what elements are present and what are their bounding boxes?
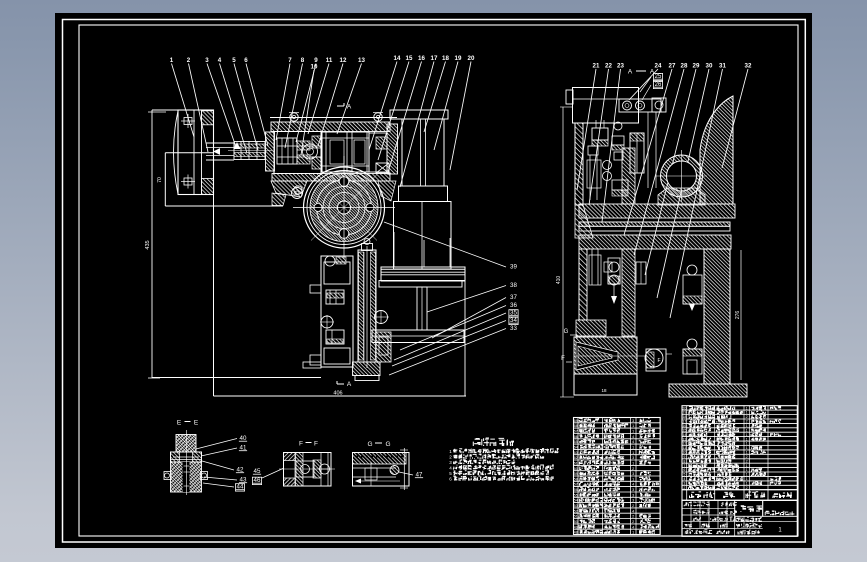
svg-text:6: 6 [683,468,685,472]
svg-text:1: 1 [746,442,748,446]
svg-text:10: 10 [682,451,686,455]
svg-text:4: 4 [632,483,634,487]
svg-text:4: 4 [218,57,222,64]
svg-text:4: 4 [683,477,685,481]
svg-text:32: 32 [745,63,752,70]
svg-text:49: 49 [574,525,578,529]
svg-text:67: 67 [574,430,578,434]
svg-text:F: F [657,358,660,364]
svg-text:1: 1 [746,433,748,437]
svg-text:19: 19 [455,55,462,62]
svg-text:6: 6 [244,57,248,64]
svg-text:57: 57 [574,483,578,487]
svg-text:18: 18 [442,55,449,62]
svg-text:1: 1 [746,411,748,415]
svg-text:7: 7 [683,464,685,468]
svg-text:3: 3 [632,488,634,492]
svg-text:11: 11 [683,446,687,450]
svg-text:5: 5 [232,57,236,64]
svg-text:1: 1 [746,477,748,481]
svg-text:1: 1 [746,424,748,428]
svg-text:A: A [347,381,352,388]
svg-text:4: 4 [632,440,634,444]
svg-text:20: 20 [682,406,686,410]
svg-text:56: 56 [574,488,578,492]
svg-text:1: 1 [746,428,748,432]
svg-text:3: 3 [632,419,634,423]
svg-text:2: 2 [632,515,634,519]
svg-text:8: 8 [301,57,305,64]
svg-text:410: 410 [556,276,562,285]
svg-text:G: G [385,441,390,448]
svg-text:1: 1 [632,446,634,450]
svg-text:13: 13 [358,57,365,64]
svg-text:2: 2 [632,467,634,471]
svg-text:15: 15 [682,428,686,432]
svg-text:60: 60 [574,467,578,471]
svg-text:16: 16 [418,55,425,62]
svg-text:4: 4 [632,509,634,513]
svg-text:4: 4 [632,525,634,529]
svg-text:5: 5 [683,473,685,477]
svg-text:1: 1 [632,430,634,434]
svg-text:276: 276 [735,311,741,320]
svg-text:14: 14 [682,433,686,437]
svg-text:52: 52 [574,509,578,513]
svg-text:28: 28 [681,63,688,70]
svg-text:33: 33 [510,325,517,332]
svg-text:9: 9 [683,455,685,459]
svg-text:G: G [564,329,569,335]
svg-text:53: 53 [574,504,578,508]
svg-text:F: F [299,441,303,448]
svg-text:70: 70 [157,177,163,183]
svg-text:12: 12 [682,442,686,446]
svg-text:2: 2 [632,520,634,524]
svg-text:58: 58 [574,477,578,481]
svg-text:7: 7 [288,57,292,64]
svg-text:1: 1 [170,57,174,64]
svg-text:59: 59 [574,472,578,476]
svg-text:1: 1 [632,424,634,428]
svg-text:16: 16 [682,424,686,428]
svg-text:8: 8 [683,459,685,463]
svg-text:E: E [177,420,182,427]
svg-text:39: 39 [510,264,517,271]
svg-text:21: 21 [593,63,600,70]
svg-text:63: 63 [574,451,578,455]
svg-text:27: 27 [669,63,676,70]
svg-text:3: 3 [632,472,634,476]
svg-text:54: 54 [574,499,578,503]
svg-text:12: 12 [340,57,347,64]
svg-text:G: G [367,441,372,448]
svg-text:22: 22 [605,63,612,70]
svg-text:14: 14 [394,55,401,62]
svg-text:3: 3 [632,456,634,460]
svg-text:23: 23 [617,63,624,70]
svg-text:1: 1 [746,468,748,472]
svg-text:1: 1 [632,477,634,481]
svg-text:50: 50 [574,520,578,524]
svg-text:3: 3 [683,482,685,486]
svg-text:1: 1 [632,451,634,455]
svg-text:36: 36 [510,302,517,309]
svg-text:29: 29 [693,63,700,70]
svg-text:24: 24 [655,63,662,70]
svg-text:1: 1 [746,482,748,486]
svg-text:18: 18 [601,388,607,393]
svg-text:1: 1 [746,437,748,441]
svg-text:1: 1 [746,446,748,450]
svg-text:406: 406 [333,391,342,397]
svg-text:3: 3 [632,493,634,497]
svg-text:2: 2 [746,420,748,424]
svg-text:66: 66 [574,435,578,439]
svg-text:3: 3 [205,57,209,64]
svg-text:1: 1 [632,531,634,535]
svg-text:2: 2 [632,504,634,508]
svg-text:48: 48 [574,531,578,535]
svg-text:2: 2 [746,459,748,463]
svg-text:2: 2 [746,415,748,419]
svg-text:3: 3 [632,499,634,503]
svg-text:65: 65 [574,440,578,444]
svg-text:62: 62 [574,456,578,460]
svg-text:1: 1 [746,451,748,455]
svg-text:11: 11 [326,57,333,64]
svg-text:1: 1 [632,462,634,466]
svg-text:15: 15 [406,55,413,62]
svg-text:20: 20 [468,55,475,62]
svg-text:2: 2 [746,455,748,459]
svg-text:68: 68 [574,424,578,428]
svg-text:F: F [314,441,318,448]
svg-text:10: 10 [311,64,318,71]
svg-text:55: 55 [574,493,578,497]
svg-text:2: 2 [187,57,191,64]
svg-text:51: 51 [574,515,578,519]
svg-text:435: 435 [145,240,151,249]
svg-text:17: 17 [682,420,686,424]
svg-text:31: 31 [719,63,726,70]
svg-text:E: E [194,420,199,427]
svg-text:64: 64 [574,446,578,450]
svg-text:37: 37 [510,294,517,301]
svg-text:19: 19 [682,411,686,415]
svg-text:4: 4 [632,435,634,439]
svg-text:61: 61 [574,462,578,466]
svg-text:1: 1 [746,473,748,477]
svg-text:1: 1 [746,464,748,468]
svg-text:17: 17 [431,55,438,62]
svg-text:1: 1 [746,406,748,410]
svg-text:A: A [347,104,352,111]
svg-text:30: 30 [706,63,713,70]
svg-text:A: A [628,69,633,76]
svg-text:18: 18 [682,415,686,419]
svg-text:69: 69 [574,419,578,423]
svg-text:38: 38 [510,282,517,289]
svg-text:13: 13 [682,437,686,441]
